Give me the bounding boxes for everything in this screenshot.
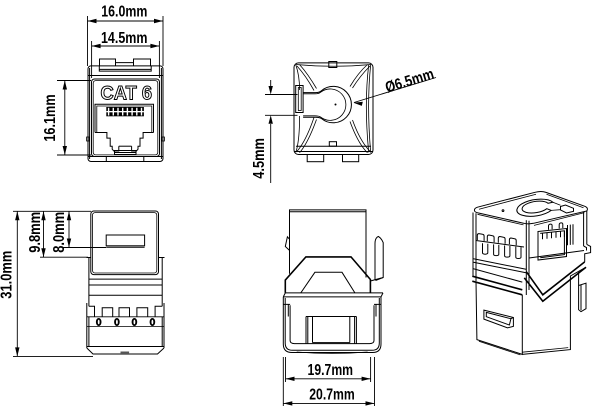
svg-text:9.8mm: 9.8mm	[27, 212, 44, 253]
svg-text:19.7mm: 19.7mm	[308, 362, 354, 379]
svg-text:4.5mm: 4.5mm	[251, 138, 268, 179]
svg-text:14.5mm: 14.5mm	[101, 30, 147, 47]
svg-text:8.0mm: 8.0mm	[51, 212, 68, 253]
svg-text:CAT 6: CAT 6	[101, 84, 153, 105]
svg-text:16.0mm: 16.0mm	[101, 4, 147, 21]
svg-text:31.0mm: 31.0mm	[0, 251, 16, 299]
svg-text:20.7mm: 20.7mm	[309, 387, 355, 404]
svg-text:16.1mm: 16.1mm	[42, 94, 59, 141]
